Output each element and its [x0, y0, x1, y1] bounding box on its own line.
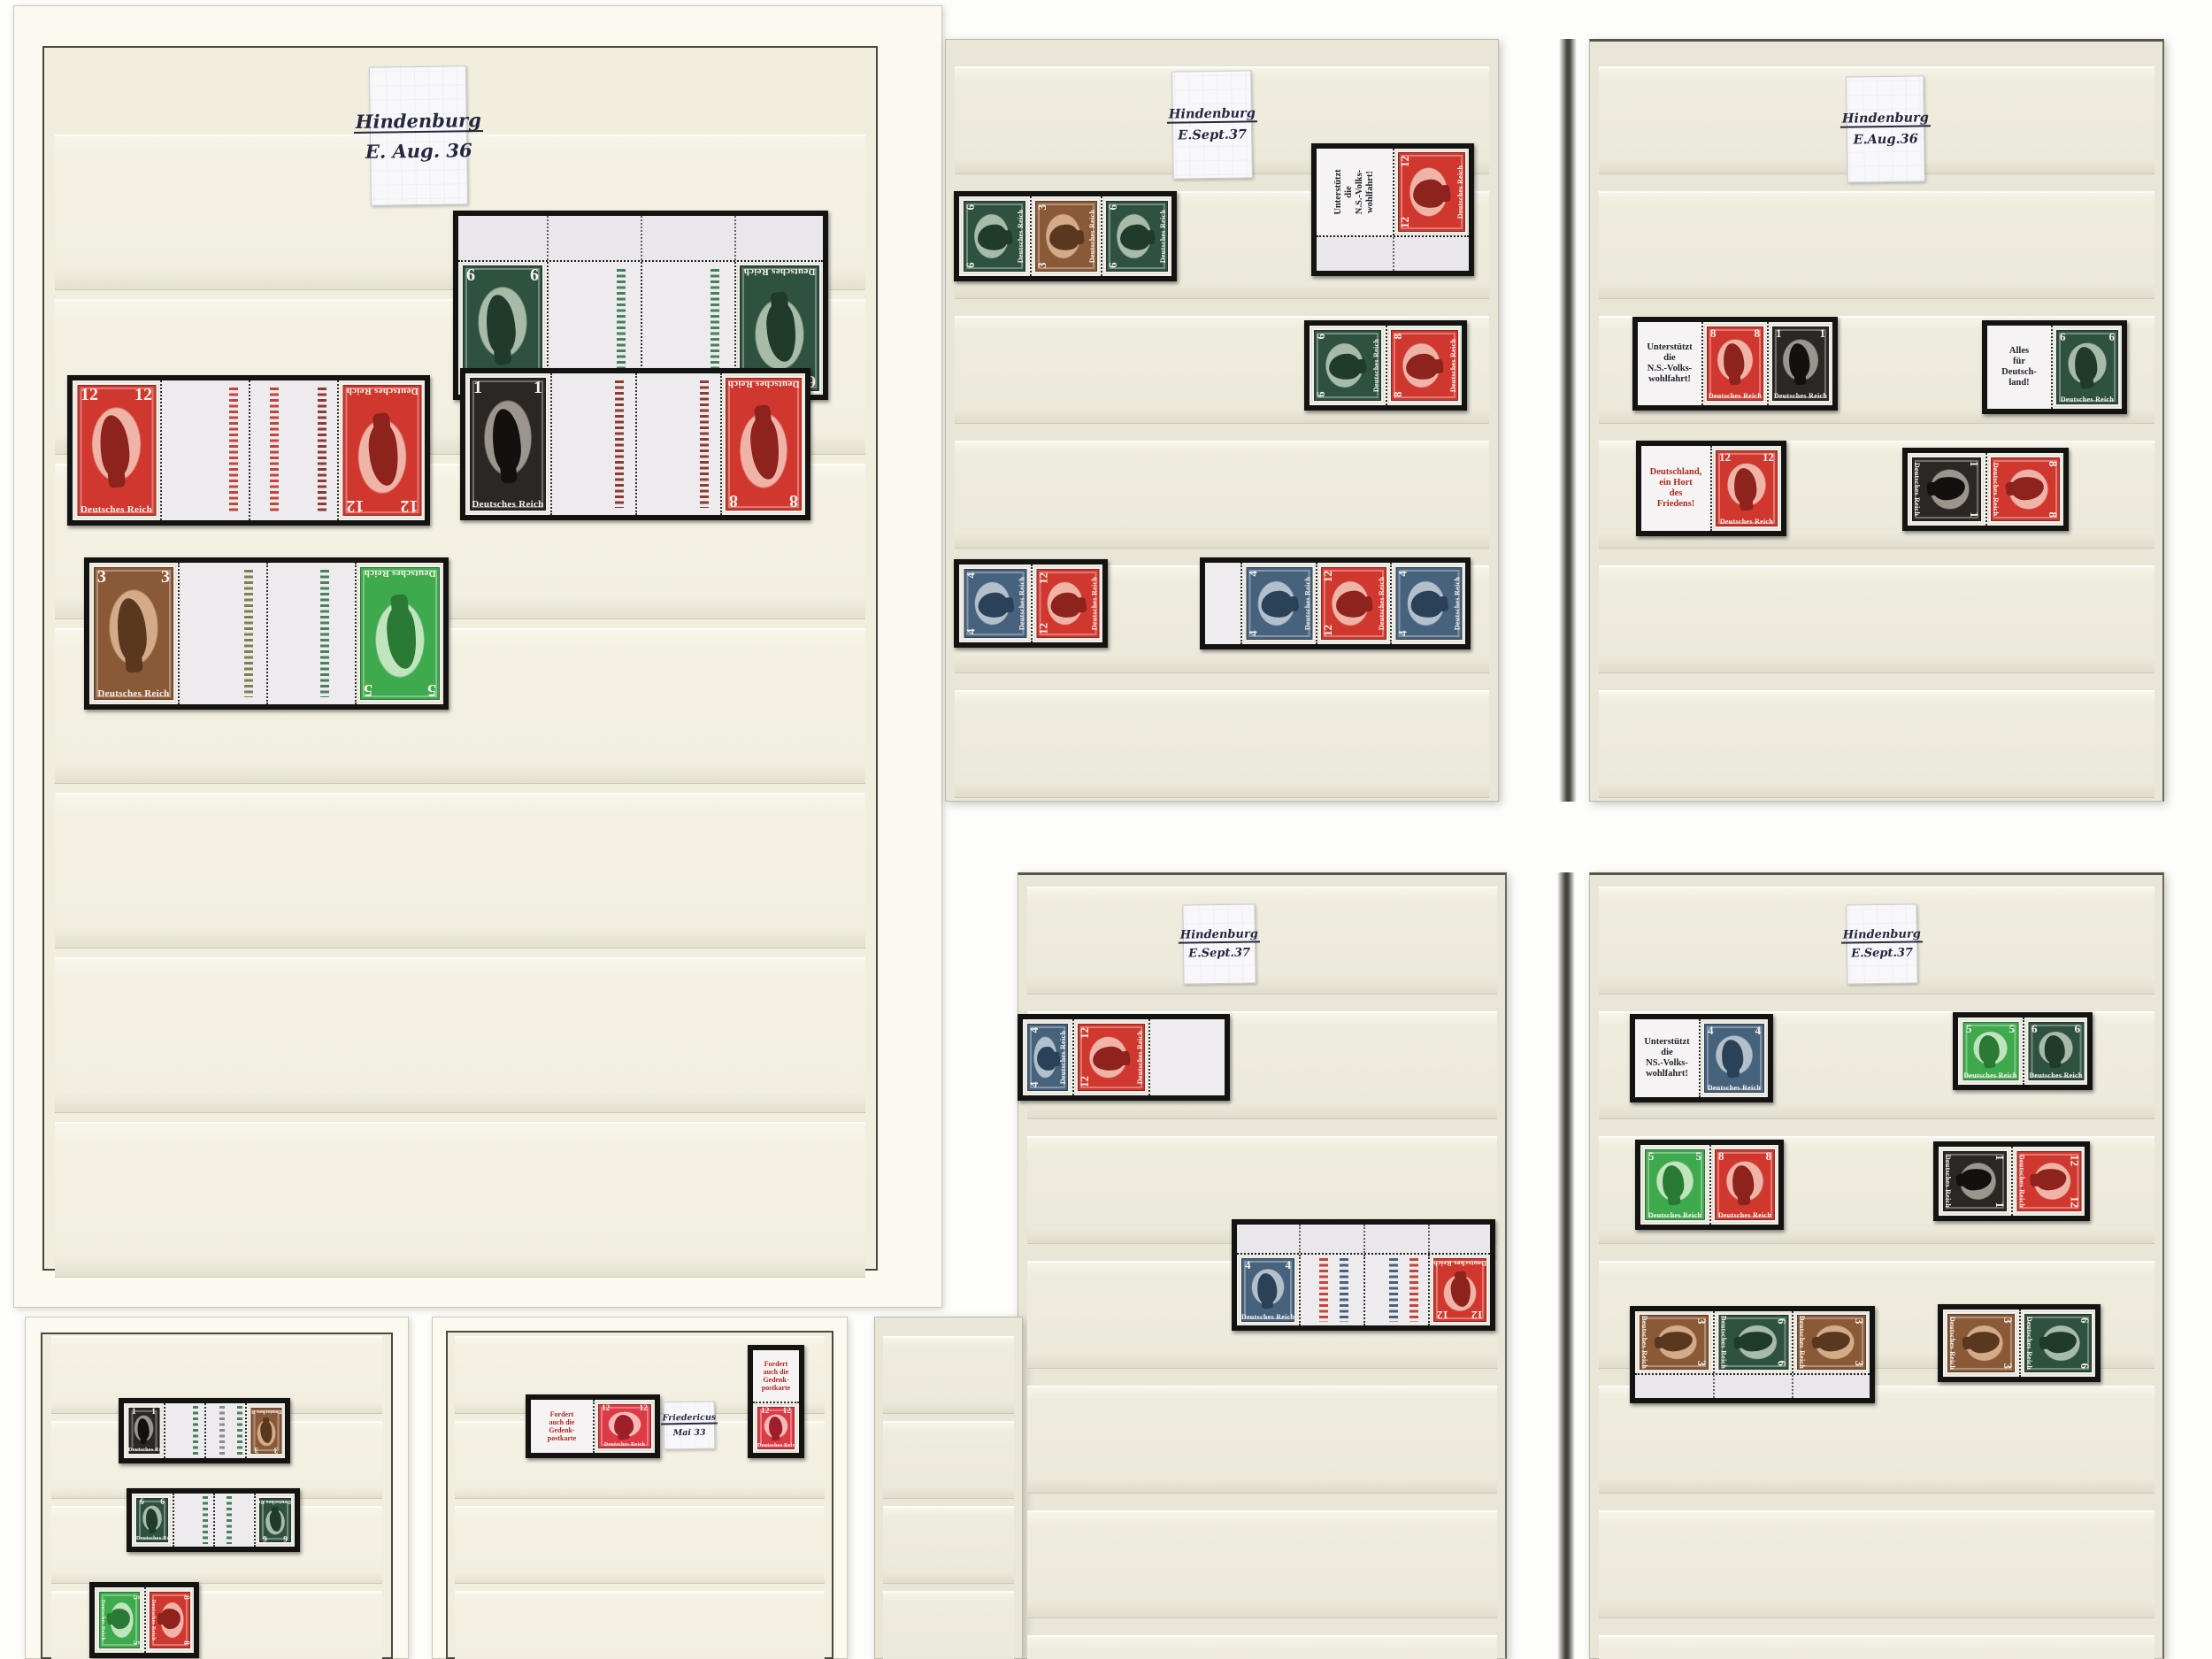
hindenburg-stamp: 44Deutsches Reich — [1240, 563, 1316, 644]
stamp-value: 4 — [1247, 571, 1258, 577]
stamp-country-caption: Deutsches Reich — [1018, 569, 1025, 638]
stamp-row: Fordertauch dieGedenk-postkarte1212Deuts… — [531, 1400, 655, 1453]
hindenburg-stamp: 11Deutsches Reich — [465, 373, 550, 515]
stamp-row: UnterstütztdieN.S.-Volks-wohlfahrt!1212D… — [1317, 149, 1469, 235]
stamp-value: 12 — [1763, 451, 1774, 463]
gutter-bar-column — [193, 1406, 198, 1455]
stamp-ink: 33Deutsches Reich — [94, 567, 173, 700]
stamp-value: 6 — [283, 1533, 288, 1542]
stamp-country-caption: Deutsches Reich — [1059, 1024, 1067, 1091]
stamp-artwork: 1212Deutsches Reich — [1075, 1021, 1148, 1094]
stamp-ink: 11Deutsches Reich — [128, 1408, 159, 1454]
advert-text-block: AllesfürDeutsch-land! — [1990, 328, 2048, 406]
stamp-value: 3 — [1036, 263, 1048, 269]
handwritten-label-line: E.Aug.36 — [1853, 133, 1917, 147]
stamp-mount-br-pair-5-8: 55Deutsches Reich88Deutsches Reich — [1635, 1140, 1784, 1230]
hindenburg-stamp: 1212Deutsches Reich — [73, 380, 160, 520]
hindenburg-stamp: 11Deutsches Reich — [124, 1403, 164, 1458]
gutter-field — [1299, 1255, 1363, 1325]
advert-text-line: des — [1670, 488, 1683, 499]
stamp-artwork: 66Deutsches Reich — [2054, 327, 2121, 407]
stamp-value: 3 — [1696, 1318, 1708, 1325]
stamp-value: 1 — [1969, 461, 1980, 467]
stamp-ink: 33Deutsches Reich — [250, 1408, 281, 1454]
stamp-ink: 1212Deutsches Reich — [1716, 450, 1778, 526]
advert-text-line: N.S.-Volks- — [1647, 364, 1692, 374]
hindenburg-stamp: 66Deutsches Reich — [132, 1494, 173, 1547]
stamp-ink: 33Deutsches Reich — [1947, 1314, 2015, 1372]
stamp-artwork: 1212Deutsches Reich — [1395, 150, 1468, 234]
handwritten-label-line: Hindenburg — [1840, 111, 1931, 128]
handwritten-label-line: E.Sept.37 — [1178, 128, 1247, 142]
stamp-value: 8 — [1392, 334, 1403, 340]
handwritten-label: HindenburgE. Aug. 36 — [369, 65, 468, 206]
handwritten-label: HindenburgE.Sept.37 — [1182, 903, 1256, 984]
stamp-value: 12 — [761, 1408, 770, 1417]
handwritten-label: HindenburgE.Sept.37 — [1171, 70, 1253, 179]
stamp-mount-br-strip-3-6-3: 33Deutsches Reich66Deutsches Reich33Deut… — [1630, 1306, 1875, 1403]
stamp-artwork: 88Deutsches Reich — [1712, 1147, 1778, 1223]
stamp-value: 12 — [783, 1408, 792, 1417]
stamp-country-caption: Deutsches Reich — [2025, 1314, 2033, 1372]
advert-text-line: auch die — [549, 1418, 575, 1426]
stamp-country-caption: Deutsches Reich — [1913, 457, 1921, 521]
advert-text-block: UnterstütztdieNS.-Volks-wohlfahrt! — [1638, 1022, 1696, 1094]
stamp-country-caption: Deutsches Reich — [1449, 330, 1457, 401]
sheet-margin — [1237, 1225, 1490, 1255]
stamp-row: 44Deutsches Reich1212Deutsches Reich — [959, 565, 1102, 642]
stamp-mount-bl2-fordert-12-vertical: Fordertauch dieGedenk-postkarte1212Deuts… — [748, 1345, 804, 1458]
stamp-value: 4 — [1708, 1025, 1714, 1036]
stamp-mount-tl-red-gutter-tete-beche: 1212Deutsches Reich1212Deutsches Reich — [67, 375, 430, 526]
hindenburg-stamp: 44Deutsches Reich — [1699, 1019, 1768, 1097]
gutter-bar-column — [700, 380, 709, 508]
stamp-country-caption: Deutsches Reich — [726, 379, 802, 389]
hindenburg-stamp: 55Deutsches Reich — [95, 1587, 144, 1653]
stamp-value: 5 — [1966, 1023, 1972, 1034]
advert-text-block: UnterstütztdieN.S.-Volks-wohlfahrt! — [1319, 150, 1390, 234]
stamp-mount-tr-alles-fuer-deutschland-6: AllesfürDeutsch-land!66Deutsches Reich — [1982, 320, 2127, 414]
stamp-ink: 88Deutsches Reich — [1715, 1149, 1775, 1220]
gutter-field — [178, 563, 266, 704]
stamp-artwork: 33Deutsches Reich — [248, 1405, 284, 1456]
gutter-bar-column — [270, 388, 279, 513]
stamp-row: 44Deutsches Reich1212Deutsches Reich44De… — [1205, 563, 1465, 644]
page-binding-shadow — [1557, 872, 1575, 1659]
stamp-country-caption: Deutsches Reich — [1372, 330, 1380, 401]
stamp-ink: 1212Deutsches Reich — [1433, 1258, 1486, 1322]
stamp-row: 11Deutsches Reich1212Deutsches Reich — [1939, 1147, 2085, 1216]
stamp-mount-tm-pair-6-8: 66Deutsches Reich88Deutsches Reich — [1304, 320, 1467, 411]
gutter-field — [266, 563, 355, 704]
stamp-value: 1 — [132, 1409, 136, 1417]
stamp-country-caption: Deutsches Reich — [360, 568, 440, 579]
handwritten-label-line: E.Sept.37 — [1188, 948, 1250, 960]
stock-strip — [55, 957, 865, 1113]
stamp-artwork: 33Deutsches Reich — [1033, 198, 1100, 274]
hindenburg-stamp: 1212Deutsches Reich — [337, 380, 425, 520]
hindenburg-stamp: 11Deutsches Reich — [1939, 1147, 2011, 1216]
stamp-value: 3 — [1036, 204, 1048, 211]
hindenburg-stamp: 11Deutsches Reich — [1908, 453, 1985, 526]
stamp-country-caption: Deutsches Reich — [1017, 201, 1025, 272]
stamp-value: 1 — [1969, 512, 1980, 518]
advert-label-field: UnterstütztdieNS.-Volks-wohlfahrt! — [1635, 1019, 1699, 1097]
stamp-ink: 44Deutsches Reich — [1027, 1024, 1068, 1091]
gutter-bar-column — [320, 570, 329, 697]
handwritten-label-line: Friedericus — [661, 1413, 718, 1425]
stamp-mount-tl-brown-green-gutter: 33Deutsches Reich55Deutsches Reich — [84, 557, 449, 710]
stamp-value: 4 — [1028, 1027, 1040, 1033]
stock-strip — [1599, 690, 2154, 798]
stamp-country-caption: Deutsches Reich — [1645, 1211, 1705, 1219]
advert-text-block: Fordertauch dieGedenk-postkarte — [534, 1402, 590, 1450]
stamp-value: 8 — [1766, 1150, 1772, 1162]
stamp-country-caption: Deutsches Reich — [250, 1409, 281, 1414]
perforation-line — [1393, 237, 1394, 271]
gutter-bar-column — [1389, 1258, 1398, 1322]
gutter-bar-column — [227, 1496, 232, 1544]
hindenburg-stamp: 33Deutsches Reich — [1635, 1311, 1713, 1373]
stamp-artwork: 1212Deutsches Reich — [1431, 1256, 1489, 1325]
hindenburg-stamp: 66Deutsches Reich — [254, 1494, 295, 1547]
stamp-value: 12 — [1322, 625, 1333, 636]
stamp-value: 12 — [1471, 1310, 1483, 1321]
stamp-value: 12 — [2069, 1196, 2080, 1208]
advert-text-line: ein Hort — [1659, 478, 1693, 488]
stamp-value: 3 — [1854, 1318, 1865, 1325]
stamp-country-caption: Deutsches Reich — [1772, 392, 1829, 400]
stamp-country-caption: Deutsches Reich — [1088, 201, 1096, 272]
stamp-mount-bl1-kz-1-3: 11Deutsches Reich33Deutsches Reich — [119, 1398, 290, 1463]
advert-text-line: die — [1661, 1048, 1672, 1058]
advert-text-line: Fordert — [550, 1410, 574, 1418]
advert-text-block: UnterstütztdieN.S.-Volks-wohlfahrt! — [1640, 325, 1699, 403]
stamp-value: 8 — [1710, 327, 1717, 339]
stamp-value: 4 — [1245, 1259, 1251, 1271]
stamp-row: 1212Deutsches Reich1212Deutsches Reich — [73, 380, 425, 520]
advert-text-line: wohlfahrt! — [1648, 374, 1691, 385]
handwritten-label-line: Mai 33 — [673, 1428, 706, 1437]
stamp-artwork: 33Deutsches Reich — [91, 565, 176, 703]
stamp-value: 12 — [134, 386, 152, 403]
stamp-value: 12 — [400, 497, 418, 515]
hindenburg-stamp: 44Deutsches Reich — [1237, 1255, 1299, 1325]
stamp-ink: 1212Deutsches Reich — [77, 385, 156, 516]
gutter-bar-column — [219, 1406, 225, 1455]
stamp-row: 66Deutsches Reich66Deutsches Reich — [132, 1494, 295, 1547]
stamp-country-caption: Deutsches Reich — [77, 504, 156, 515]
stamp-ink: 1212Deutsches Reich — [2016, 1151, 2081, 1211]
advert-label-field: Fordertauch dieGedenk-postkarte — [531, 1400, 593, 1453]
hindenburg-stamp: 1212Deutsches Reich — [1710, 446, 1781, 531]
hindenburg-stamp: 1212Deutsches Reich — [1393, 149, 1469, 235]
stamp-row: AllesfürDeutsch-land!66Deutsches Reich — [1987, 326, 2122, 409]
gutter-bar-column — [229, 388, 238, 513]
stamp-value: 8 — [2047, 512, 2059, 518]
stamp-value: 6 — [1315, 334, 1326, 340]
stamp-row: 33Deutsches Reich66Deutsches Reich — [1943, 1310, 2095, 1377]
stamp-value: 4 — [1286, 1259, 1292, 1271]
advert-text-block: Fordertauch dieGedenk-postkarte — [756, 1353, 796, 1399]
hindenburg-stamp: 88Deutsches Reich — [720, 373, 805, 515]
stamp-mount-bm-pair-4-12-margin: 44Deutsches Reich1212Deutsches Reich — [1018, 1014, 1230, 1101]
stamp-value: 4 — [1396, 631, 1408, 637]
stamp-mount-bl1-kz-6-6: 66Deutsches Reich66Deutsches Reich — [127, 1488, 300, 1552]
stamp-mount-bl2-fordert-12-horizontal: Fordertauch dieGedenk-postkarte1212Deuts… — [526, 1394, 660, 1458]
stamp-value: 8 — [181, 1595, 190, 1600]
perforation-line — [1363, 1225, 1365, 1253]
stamp-value: 6 — [263, 1533, 267, 1542]
stamp-value: 6 — [2079, 1363, 2091, 1370]
gutter-field — [160, 380, 249, 520]
hindenburg-stamp: 44Deutsches Reich — [1390, 563, 1465, 644]
perforation-line — [1299, 1225, 1301, 1253]
stamp-mount-tr-pair-1-8-sideways: 11Deutsches Reich88Deutsches Reich — [1902, 448, 2069, 531]
stamp-ink: 66Deutsches Reich — [964, 201, 1025, 272]
stamp-ink: 1212Deutsches Reich — [342, 385, 421, 516]
advert-text-line: Fordert — [764, 1360, 788, 1368]
gutter-field — [635, 373, 720, 515]
advert-text-line: NS.-Volks- — [1646, 1058, 1688, 1069]
stamp-row: 55Deutsches Reich88Deutsches Reich — [1640, 1145, 1778, 1225]
stamp-ink: 66Deutsches Reich — [259, 1498, 291, 1542]
gutter-field — [550, 373, 635, 515]
stock-strip — [1599, 191, 2154, 299]
perforation-line — [641, 216, 642, 260]
stamp-artwork: 66Deutsches Reich — [1716, 1312, 1791, 1372]
sheet-margin-field — [1148, 1019, 1225, 1095]
stamp-country-caption: Deutsches Reich — [1992, 457, 2000, 521]
stamp-country-caption: Deutsches Reich — [1719, 1315, 1727, 1370]
stamp-value: 6 — [1776, 1318, 1787, 1325]
handwritten-label-line: E. Aug. 36 — [365, 141, 472, 161]
stamp-ink: 66Deutsches Reich — [2056, 330, 2118, 404]
stamp-country-caption: Deutsches Reich — [150, 1592, 156, 1648]
stamp-country-caption: Deutsches Reich — [1159, 201, 1167, 272]
stamp-value: 1 — [473, 379, 482, 396]
advert-text-block: Deutschland,ein HortdesFriedens! — [1644, 449, 1708, 528]
stamp-value: 3 — [1696, 1361, 1708, 1367]
stamp-ink: 33Deutsches Reich — [1640, 1315, 1709, 1370]
handwritten-label: HindenburgE.Aug.36 — [1846, 75, 1925, 182]
stock-strip — [883, 1506, 1014, 1584]
gutter-bar-column — [615, 380, 624, 508]
stamp-row: 11Deutsches Reich33Deutsches Reich — [124, 1403, 285, 1458]
hindenburg-stamp: 33Deutsches Reich — [1030, 196, 1101, 276]
advert-text-line: auch die — [764, 1368, 789, 1376]
stamp-value: 6 — [1776, 1361, 1787, 1367]
perforation-line — [1428, 1225, 1430, 1253]
stamp-ink: 1212Deutsches Reich — [598, 1404, 651, 1448]
handwritten-label: FriedericusMai 33 — [664, 1402, 716, 1450]
stamp-ink: 1212Deutsches Reich — [1036, 569, 1099, 638]
stamp-ink: 55Deutsches Reich — [1962, 1022, 2018, 1080]
perforation-line — [734, 216, 736, 260]
hindenburg-stamp: 66Deutsches Reich — [1713, 1311, 1792, 1373]
stamp-artwork: 33Deutsches Reich — [1794, 1312, 1869, 1372]
stamp-row: 11Deutsches Reich88Deutsches Reich — [1908, 453, 2063, 526]
hindenburg-stamp: 11Deutsches Reich — [1767, 322, 1832, 405]
stamp-artwork: 11Deutsches Reich — [1940, 1148, 2009, 1214]
advert-text-line: Deutschland, — [1650, 467, 1702, 478]
stamp-country-caption: Deutsches Reich — [1944, 1151, 1952, 1211]
stamp-country-caption: Deutsches Reich — [136, 1536, 168, 1541]
stamp-value: 6 — [964, 263, 976, 269]
advert-text-line: Unterstützt — [1644, 1037, 1689, 1048]
stamp-row: 66Deutsches Reich33Deutsches Reich66Deut… — [959, 196, 1171, 276]
stamp-ink: 66Deutsches Reich — [136, 1498, 168, 1542]
stamp-country-caption: Deutsches Reich — [470, 499, 546, 510]
stamp-artwork: 11Deutsches Reich — [1909, 455, 1984, 524]
hindenburg-stamp: 88Deutsches Reich — [1709, 1145, 1778, 1225]
stamp-artwork: 44Deutsches Reich — [1393, 565, 1464, 642]
stamp-country-caption: Deutsches Reich — [1798, 1315, 1806, 1370]
stamp-value: 5 — [1648, 1150, 1655, 1162]
handwritten-label-line: Hindenburg — [1841, 928, 1923, 943]
stamp-country-caption: Deutsches Reich — [259, 1499, 291, 1504]
stamp-artwork: 44Deutsches Reich — [961, 566, 1029, 641]
stamp-ink: 66Deutsches Reich — [2028, 1022, 2084, 1080]
stock-strip — [55, 1122, 865, 1278]
stamp-country-caption: Deutsches Reich — [1716, 518, 1778, 526]
stamp-row: UnterstütztdieNS.-Volks-wohlfahrt!44Deut… — [1635, 1019, 1768, 1097]
gutter-bar-column — [244, 570, 253, 697]
stamp-row: Fordertauch dieGedenk-postkarte1212Deuts… — [753, 1350, 799, 1453]
stamp-row: 33Deutsches Reich55Deutsches Reich — [89, 563, 443, 704]
stamp-ink: 1212Deutsches Reich — [757, 1407, 795, 1449]
hindenburg-stamp: 55Deutsches Reich — [355, 563, 443, 704]
advert-text-line: Friedens! — [1657, 499, 1695, 510]
stamp-country-caption: Deutsches Reich — [740, 266, 819, 277]
stock-strip — [55, 793, 865, 949]
stamp-value: 5 — [427, 681, 436, 699]
stamp-value: 12 — [602, 1405, 611, 1414]
stamp-value: 3 — [2002, 1317, 2014, 1324]
stamp-value: 6 — [2109, 331, 2116, 342]
stamp-value: 6 — [2032, 1023, 2038, 1034]
gutter-field — [204, 1403, 245, 1458]
stamp-value: 12 — [1079, 1027, 1090, 1039]
page-binding-shadow — [1559, 39, 1577, 802]
stamp-artwork: 44Deutsches Reich — [1239, 1256, 1297, 1325]
gutter-bar-column — [1409, 1258, 1418, 1322]
sheet-margin — [1635, 1373, 1870, 1398]
friedrich-stamp: 1212Deutsches Reich — [753, 1402, 799, 1453]
stamp-artwork: 11Deutsches Reich — [126, 1405, 162, 1456]
stamp-country-caption: Deutsches Reich — [1241, 1313, 1294, 1321]
advert-text-line: wohlfahrt! — [1365, 171, 1376, 213]
stamp-value: 12 — [2069, 1155, 2080, 1166]
stamp-album-photo: HindenburgE. Aug. 36HindenburgE.Sept.37H… — [0, 0, 2212, 1659]
stock-strip — [883, 1591, 1014, 1659]
hindenburg-stamp: 88Deutsches Reich — [144, 1587, 194, 1653]
stamp-ink: 88Deutsches Reich — [726, 378, 802, 511]
stamp-artwork: 55Deutsches Reich — [357, 565, 442, 703]
hindenburg-stamp: 66Deutsches Reich — [1101, 196, 1171, 276]
stamp-country-caption: Deutsches Reich — [1715, 1211, 1775, 1219]
stamp-country-caption: Deutsches Reich — [1707, 392, 1763, 400]
hindenburg-stamp: 33Deutsches Reich — [245, 1403, 285, 1458]
stamp-ink: 88Deutsches Reich — [1391, 330, 1458, 401]
stamp-value: 12 — [1322, 571, 1333, 582]
stamp-value: 3 — [254, 1445, 258, 1454]
stamp-value: 3 — [273, 1445, 278, 1454]
stamp-ink: 11Deutsches Reich — [470, 378, 546, 511]
stamp-ink: 11Deutsches Reich — [1943, 1151, 2007, 1211]
stamp-value: 6 — [1107, 204, 1118, 211]
handwritten-label-line: Hindenburg — [354, 111, 483, 134]
handwritten-label-line: Hindenburg — [1179, 928, 1260, 943]
gutter-field — [173, 1494, 213, 1547]
gutter-field — [1363, 1255, 1428, 1325]
stamp-artwork: 66Deutsches Reich — [2022, 1311, 2094, 1375]
stamp-country-caption: Deutsches Reich — [128, 1448, 159, 1453]
advert-text-line: land! — [2008, 378, 2029, 388]
perforation-line — [547, 216, 549, 260]
stamp-row: 44Deutsches Reich1212Deutsches Reich — [1237, 1255, 1490, 1325]
stamp-ink: 44Deutsches Reich — [964, 569, 1026, 638]
stamp-value: 12 — [1037, 572, 1048, 584]
hindenburg-stamp: 33Deutsches Reich — [1792, 1311, 1870, 1373]
stamp-mount-tm-strip3-4-12-4: 44Deutsches Reich1212Deutsches Reich44De… — [1200, 557, 1471, 649]
hindenburg-stamp: 55Deutsches Reich — [1958, 1018, 2023, 1085]
stamp-ink: 1212Deutsches Reich — [1078, 1024, 1145, 1091]
stamp-value: 1 — [1994, 1202, 2006, 1209]
stamp-value: 8 — [2047, 461, 2059, 467]
stamp-value: 6 — [140, 1499, 144, 1508]
stamp-value: 12 — [1399, 217, 1410, 228]
stamp-artwork: 1212Deutsches Reich — [1033, 566, 1102, 641]
advert-text-line: für — [2013, 357, 2025, 367]
stamp-artwork: 88Deutsches Reich — [1704, 324, 1766, 403]
gutter-bar-column — [1319, 1258, 1328, 1322]
stamp-value: 6 — [466, 266, 475, 284]
stamp-value: 8 — [729, 492, 738, 510]
stamp-artwork: 1212Deutsches Reich — [595, 1402, 654, 1451]
stamp-artwork: 33Deutsches Reich — [1637, 1312, 1711, 1372]
stamp-mount-bl1-pair-5-8: 55Deutsches Reich88Deutsches Reich — [89, 1582, 199, 1658]
stamp-ink: 44Deutsches Reich — [1395, 567, 1462, 640]
stock-strip — [1027, 1635, 1497, 1659]
stamp-value: 12 — [1399, 156, 1410, 167]
handwritten-label-line: Hindenburg — [1167, 107, 1257, 124]
stamp-value: 12 — [346, 497, 364, 515]
stamp-value: 6 — [530, 266, 539, 284]
hindenburg-stamp: 1212Deutsches Reich — [1072, 1019, 1148, 1095]
stamp-value: 1 — [1776, 327, 1782, 339]
stamp-value: 4 — [1755, 1025, 1762, 1036]
stamp-artwork: 66Deutsches Reich — [2025, 1019, 2086, 1083]
stamp-value: 8 — [1755, 327, 1761, 339]
gutter-field — [164, 1403, 204, 1458]
hindenburg-stamp: 1212Deutsches Reich — [1428, 1255, 1490, 1325]
gutter-bar-column — [1340, 1258, 1348, 1322]
stamp-ink: 66Deutsches Reich — [2024, 1314, 2092, 1372]
stamp-value: 12 — [1079, 1076, 1090, 1087]
stamp-country-caption: Deutsches Reich — [1378, 567, 1386, 640]
stamp-value: 8 — [789, 492, 798, 510]
stamp-row: 55Deutsches Reich66Deutsches Reich — [1958, 1018, 2087, 1085]
stamp-artwork: 66Deutsches Reich — [1103, 198, 1171, 274]
stamp-value: 6 — [1107, 263, 1118, 269]
stamp-ink: 55Deutsches Reich — [99, 1592, 140, 1648]
stock-strip — [883, 1336, 1014, 1414]
perforation-line — [1792, 1375, 1793, 1398]
advert-text-line: postkarte — [762, 1384, 790, 1392]
hindenburg-stamp: 44Deutsches Reich — [959, 565, 1031, 642]
stamp-value: 3 — [97, 568, 106, 586]
